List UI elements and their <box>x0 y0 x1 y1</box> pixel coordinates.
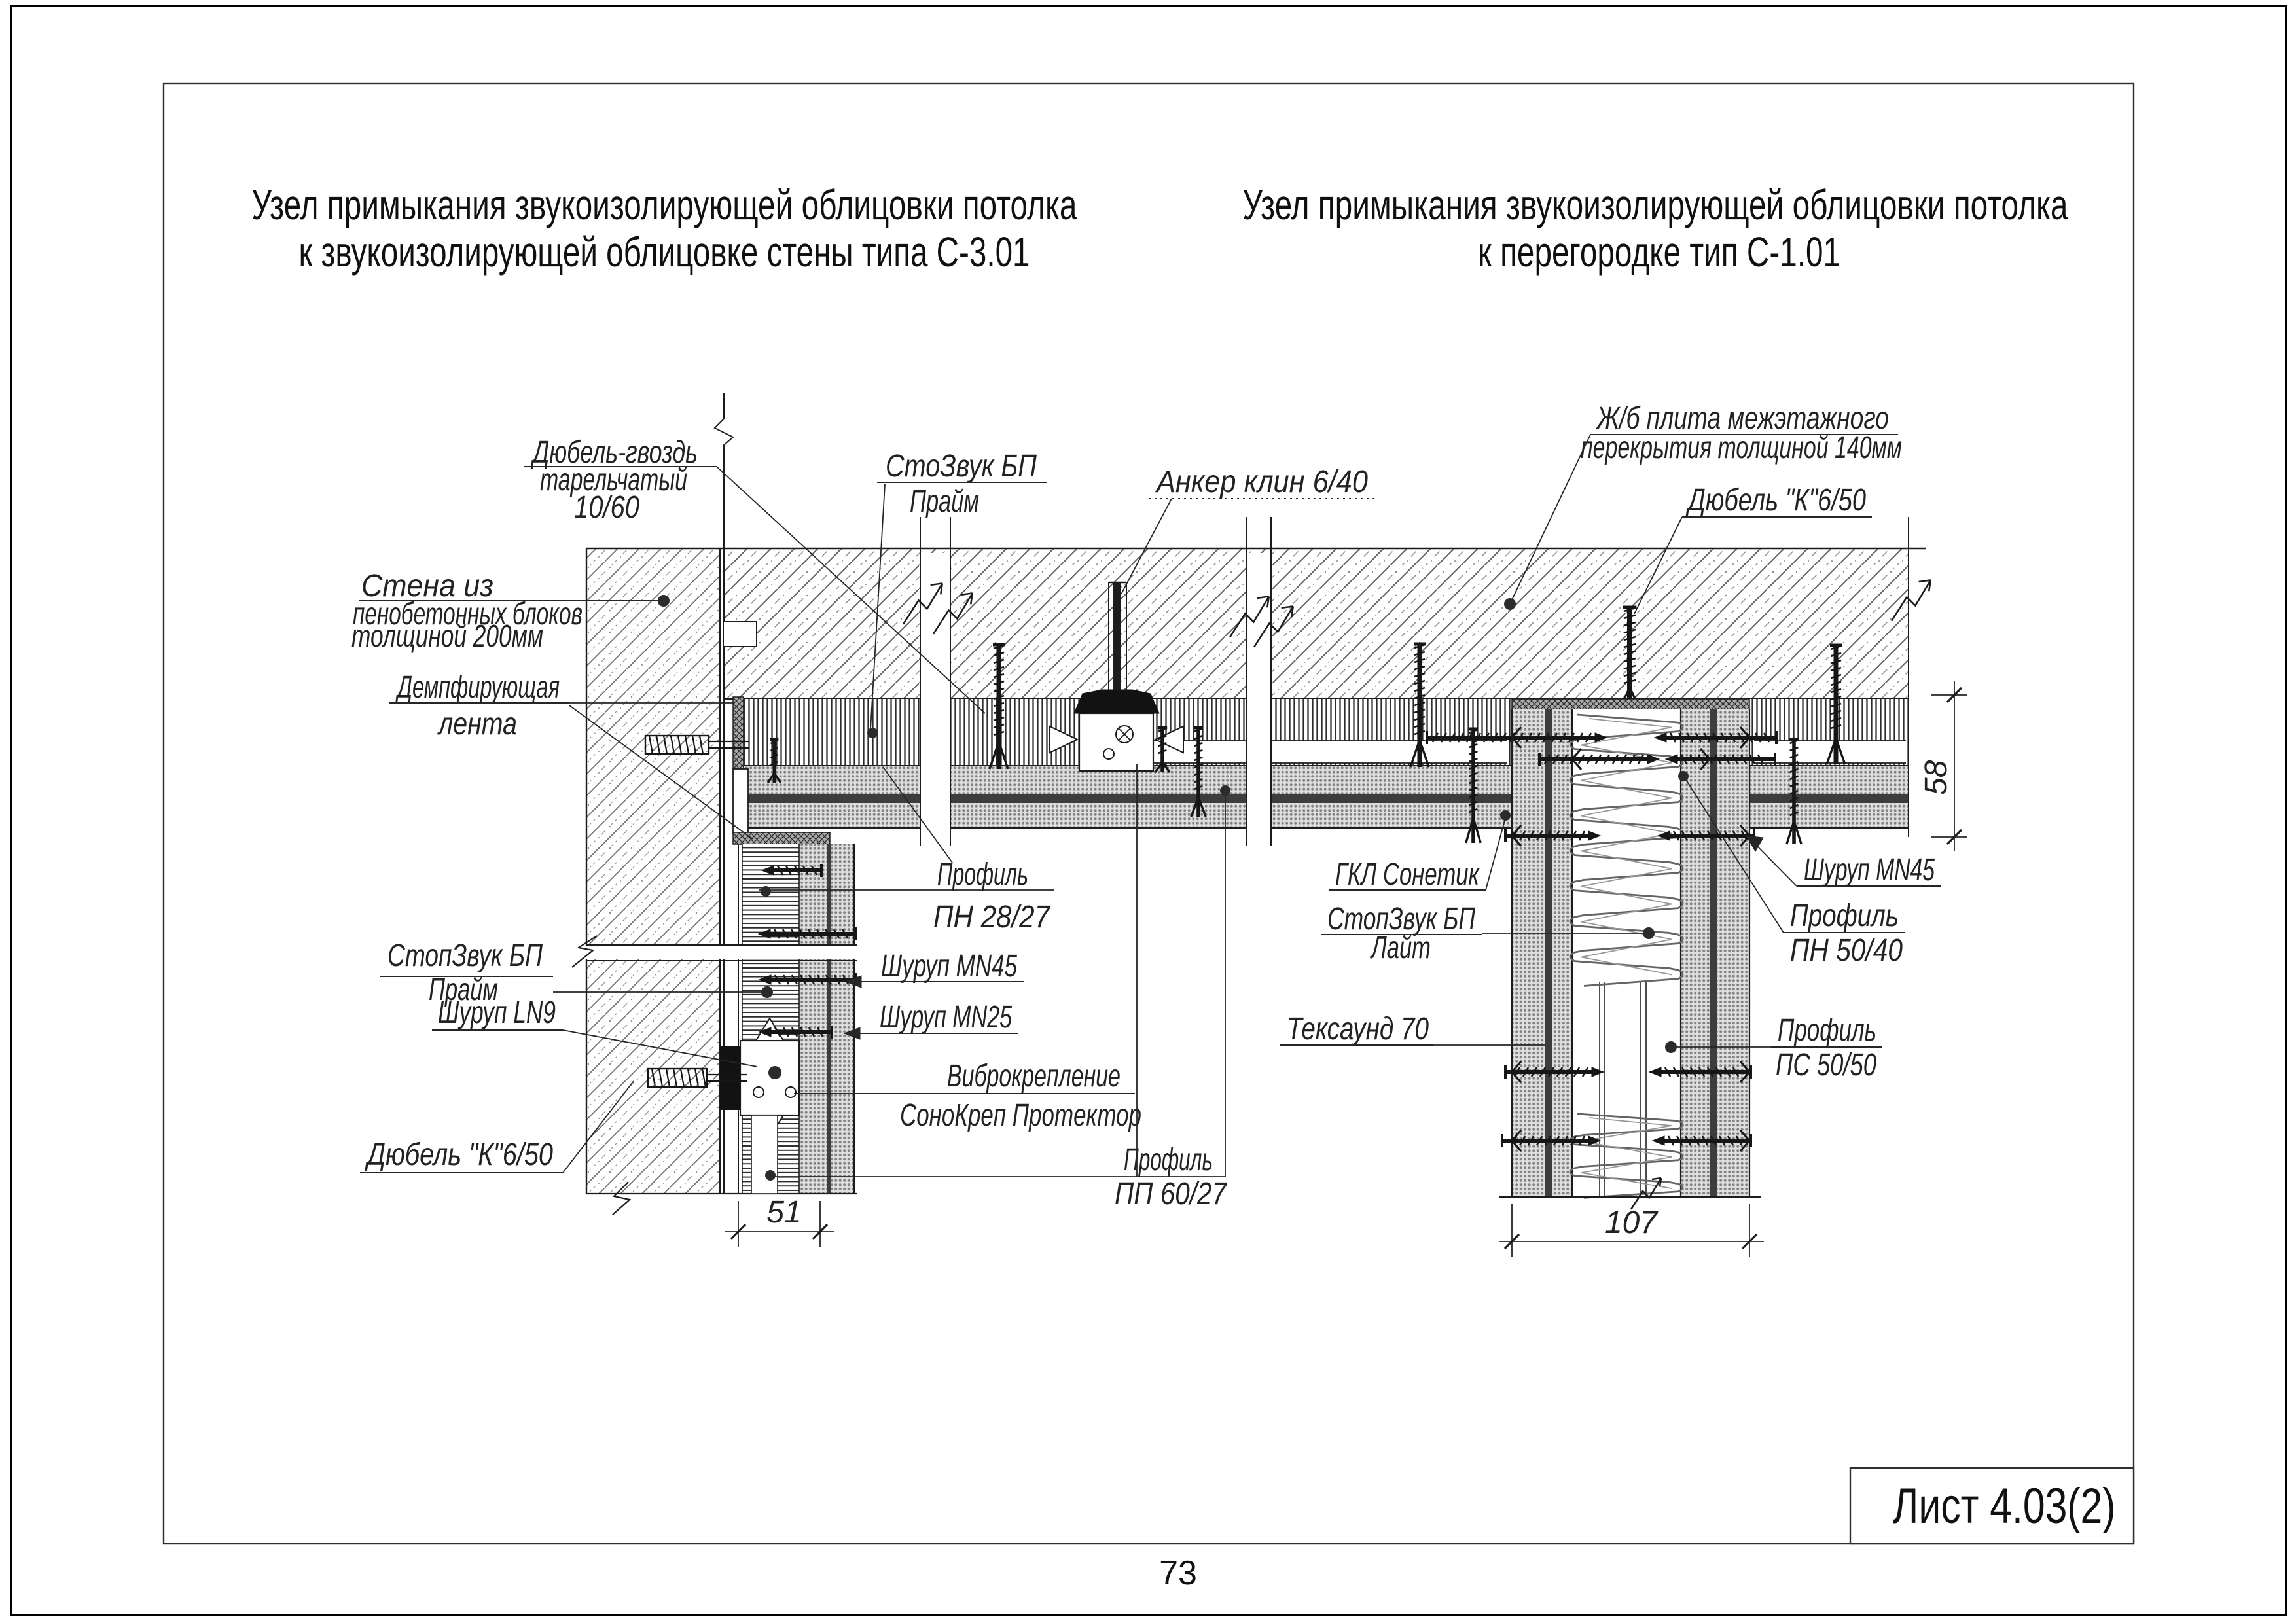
svg-text:Профиль: Профиль <box>1778 1013 1876 1048</box>
svg-text:СоноКреп Протектор: СоноКреп Протектор <box>900 1098 1141 1133</box>
svg-text:Профиль: Профиль <box>1790 899 1899 933</box>
svg-text:ПН 28/27: ПН 28/27 <box>933 900 1051 935</box>
svg-text:ПП 60/27: ПП 60/27 <box>1115 1177 1228 1211</box>
svg-text:Прайм: Прайм <box>910 484 979 519</box>
svg-text:Шуруп MN45: Шуруп MN45 <box>881 949 1017 984</box>
svg-text:ПС 50/50: ПС 50/50 <box>1776 1048 1876 1082</box>
svg-text:Лист 4.03(2): Лист 4.03(2) <box>1893 1478 2116 1534</box>
svg-text:Узел примыкания звукоизолирующ: Узел примыкания звукоизолирующей облицов… <box>1243 181 2068 228</box>
svg-text:ГКЛ Сонетик: ГКЛ Сонетик <box>1335 857 1480 892</box>
svg-text:толщиной 200мм: толщиной 200мм <box>351 619 543 654</box>
svg-text:10/60: 10/60 <box>574 490 639 525</box>
svg-text:73: 73 <box>1159 1554 1197 1592</box>
svg-text:58: 58 <box>1919 760 1954 795</box>
svg-text:Узел примыкания звукоизолирующ: Узел примыкания звукоизолирующей облицов… <box>252 181 1077 228</box>
svg-text:Дюбель "К"6/50: Дюбель "К"6/50 <box>365 1137 553 1172</box>
svg-text:к перегородке тип С-1.01: к перегородке тип С-1.01 <box>1478 228 1840 276</box>
svg-text:Шуруп LN9: Шуруп LN9 <box>438 995 556 1030</box>
svg-text:Лайт: Лайт <box>1370 931 1431 965</box>
svg-text:перекрытия толщиной 140мм: перекрытия толщиной 140мм <box>1581 431 1902 465</box>
svg-text:107: 107 <box>1605 1205 1659 1240</box>
svg-text:СтоЗвук БП: СтоЗвук БП <box>886 449 1037 484</box>
svg-text:ПН 50/40: ПН 50/40 <box>1790 933 1903 968</box>
svg-text:Демпфирующая: Демпфирующая <box>395 670 560 705</box>
svg-text:СтопЗвук БП: СтопЗвук БП <box>387 938 543 973</box>
svg-text:Дюбель "К"6/50: Дюбель "К"6/50 <box>1685 483 1866 518</box>
svg-text:51: 51 <box>766 1195 801 1230</box>
svg-text:лента: лента <box>437 707 517 741</box>
svg-text:Шуруп MN45: Шуруп MN45 <box>1804 853 1935 887</box>
svg-text:Анкер клин 6/40: Анкер клин 6/40 <box>1155 465 1368 499</box>
svg-text:Тексаунд 70: Тексаунд 70 <box>1287 1012 1429 1046</box>
svg-text:Шуруп MN25: Шуруп MN25 <box>880 1000 1012 1035</box>
svg-text:Профиль: Профиль <box>937 857 1028 892</box>
svg-text:Виброкрепление: Виброкрепление <box>947 1059 1121 1094</box>
svg-text:к звукоизолирующей облицовке с: к звукоизолирующей облицовке стены типа … <box>299 228 1030 276</box>
